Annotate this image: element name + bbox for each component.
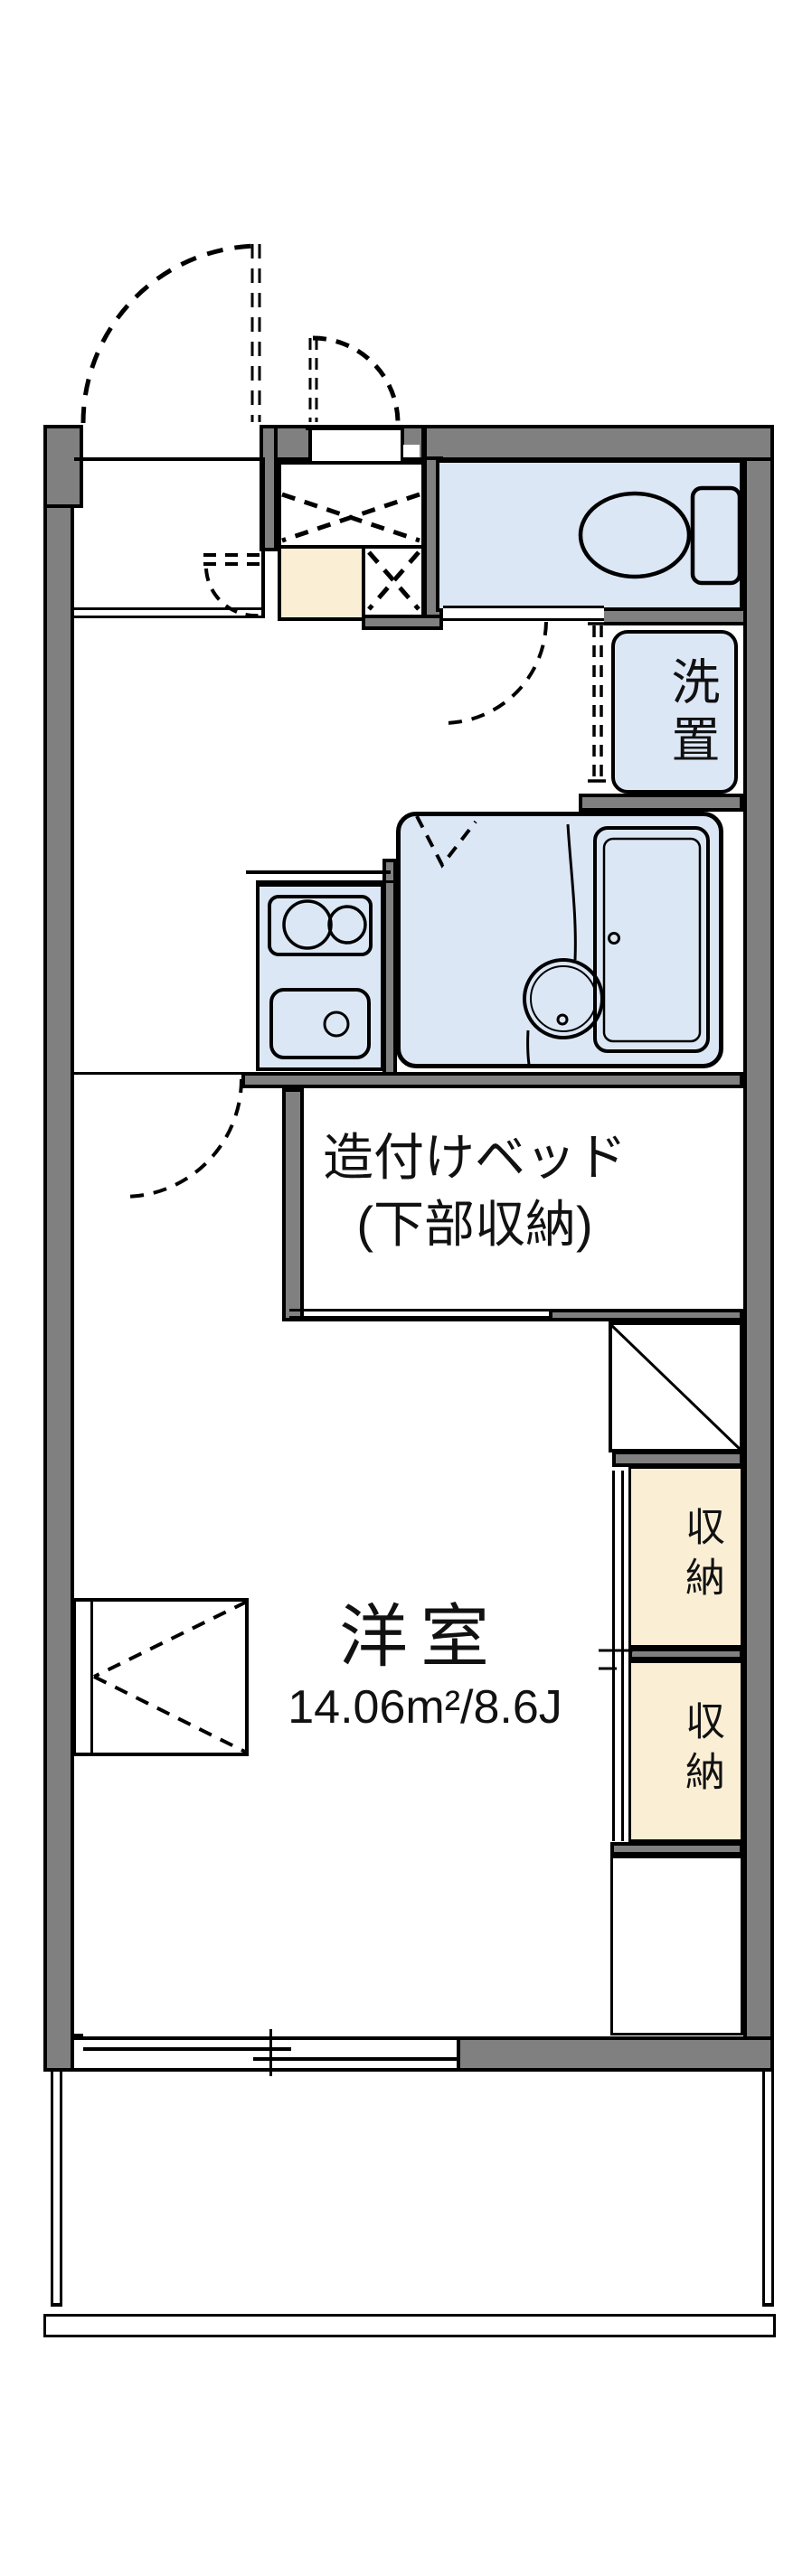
hall-bed-wall: [241, 1072, 743, 1088]
sliding-window-sash: [83, 2047, 291, 2051]
toilet-doorway-line: [443, 606, 604, 608]
sliding-window: [74, 2036, 457, 2040]
entrance-side-area: [362, 545, 425, 618]
door-swing-arc: [124, 1079, 241, 1197]
bed-label-line2: (下部収納): [249, 1199, 701, 1252]
stove-top: [268, 895, 373, 956]
wall-corner-top-left: [43, 425, 83, 508]
window-center-tick: [269, 2029, 272, 2076]
hall-door-header-line: [74, 1072, 241, 1075]
room-size-label: 14.06m²/8.6J: [244, 1683, 606, 1733]
right-outer-wall: [743, 425, 774, 2072]
balcony-railing: [60, 2072, 62, 2307]
bottom-right-wall: [457, 2036, 774, 2072]
left-outer-wall: [43, 425, 74, 2072]
fridge-bottom-wall: [612, 1451, 743, 1467]
closet-room-bottom-line: [71, 616, 265, 618]
bay-counter-line: [90, 1598, 93, 1756]
bed-front-line: [289, 1309, 552, 1312]
bathroom: [396, 812, 723, 1068]
balcony-railing: [771, 2072, 774, 2307]
fridge-space: [609, 1321, 743, 1453]
wall-notch: [403, 445, 420, 457]
closet-room-bottom-line: [71, 607, 265, 610]
storage-lower-label: 収納: [653, 1688, 722, 1814]
bed-bottom-wall-gray: [549, 1309, 743, 1321]
balcony-edge-bar: [43, 2314, 776, 2337]
porch-top-line: [306, 425, 402, 430]
genkan-tile: [278, 549, 362, 621]
bed-front-line: [289, 1316, 552, 1321]
door-swing-arc: [310, 338, 398, 423]
window-end-notch: [74, 2034, 83, 2040]
closet-room-top-line: [74, 457, 265, 461]
storage-bottom-wall: [610, 1842, 743, 1856]
door-swing-arc: [83, 244, 260, 423]
sliding-window: [74, 2068, 457, 2072]
laundry-door-dashed: [588, 624, 606, 781]
floorplan-canvas: 洗置 収納 収納: [0, 0, 812, 2576]
laundry-bottom-wall: [579, 794, 743, 812]
balcony-railing: [762, 2072, 765, 2307]
kitchen-sink: [269, 988, 371, 1059]
storage-upper-label: 収納: [653, 1493, 722, 1620]
toilet-room: [436, 459, 743, 612]
bed-label-line1: 造付けベッド: [249, 1132, 701, 1185]
balcony-railing: [51, 2072, 53, 2307]
door-swing-arc: [443, 622, 546, 723]
toilet-bottom-wall: [604, 607, 743, 625]
balcony-railing: [51, 2303, 62, 2307]
toilet-doorway-line: [443, 618, 604, 621]
sliding-door-track: [612, 1471, 615, 1841]
top-wall-segment: [423, 425, 774, 461]
closet-room-right-line: [261, 457, 265, 618]
room-name-label: 洋室: [267, 1602, 574, 1674]
balcony-railing: [762, 2303, 774, 2307]
bottom-closet: [610, 1856, 743, 2035]
entrance-upper-area: [278, 461, 425, 549]
storage-divider-wall: [628, 1648, 743, 1660]
kitchen-right-wall: [382, 859, 397, 1076]
kitchen-counter-line: [246, 870, 391, 874]
bay-counter: [72, 1598, 249, 1756]
sliding-door-track: [621, 1471, 624, 1841]
laundry-label: 洗置: [633, 651, 716, 777]
sliding-window-sash: [253, 2057, 458, 2061]
line-art-overlay: [0, 0, 812, 2576]
